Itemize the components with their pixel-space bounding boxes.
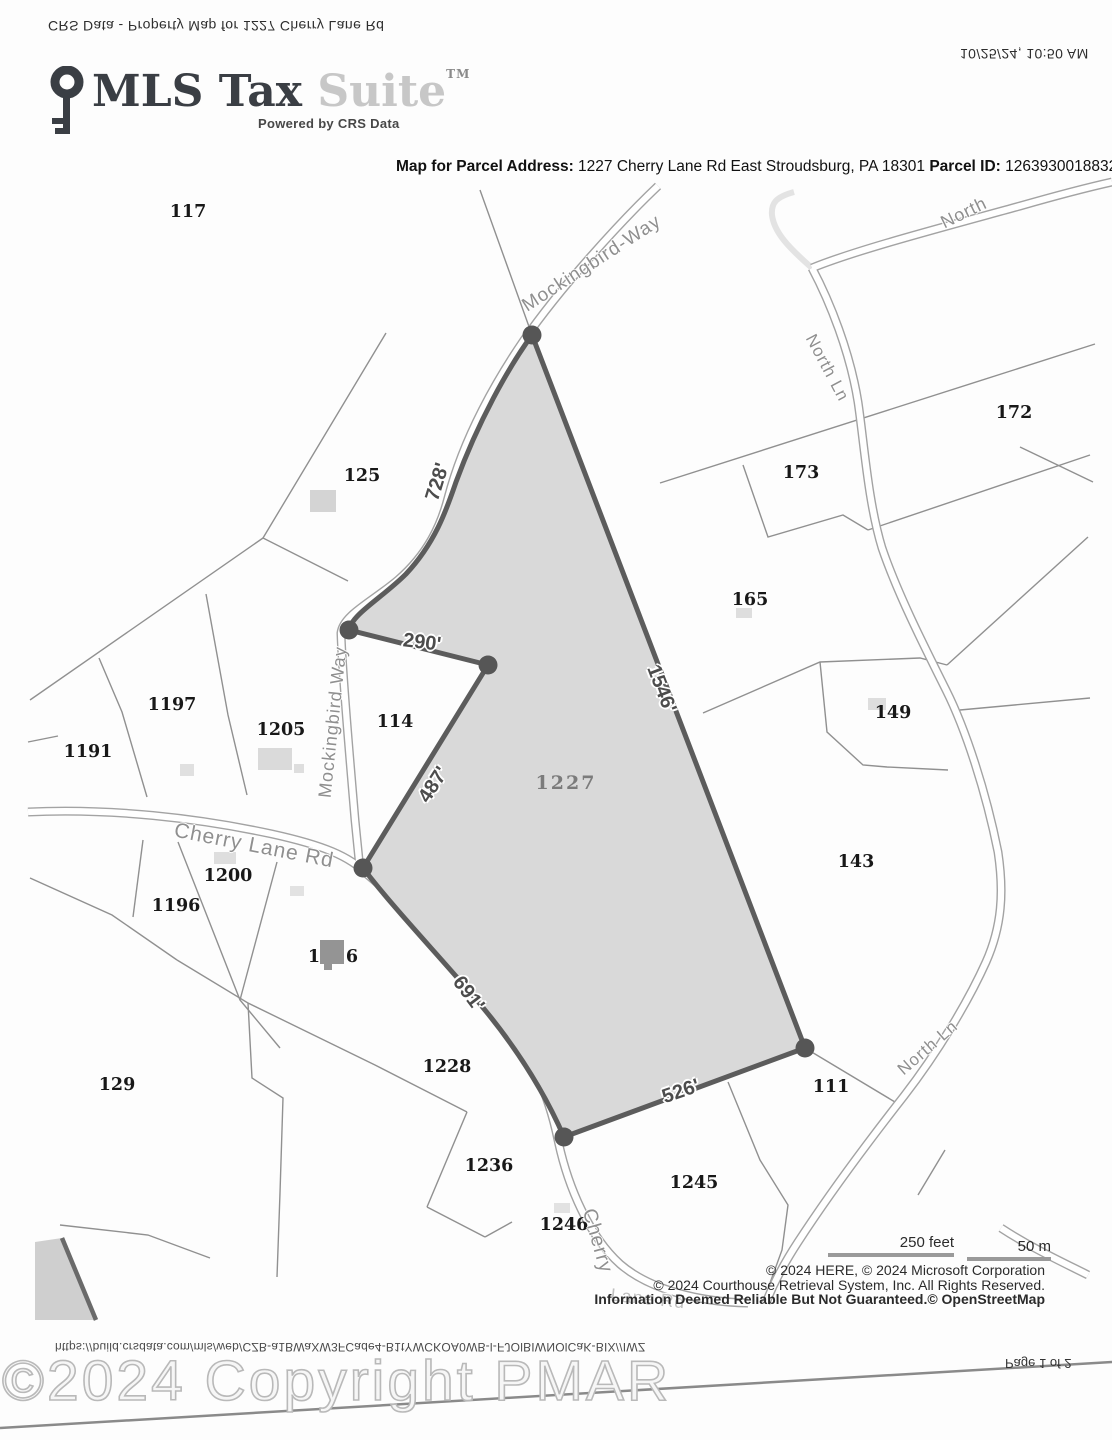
parcel-label-1x6-suffix: 6 — [346, 947, 358, 967]
map-copyright-block: © 2024 HERE, © 2024 Microsoft Corporatio… — [594, 1263, 1045, 1307]
parcel-label-149: 149 — [875, 703, 912, 723]
dimension-290: 290' — [402, 629, 443, 656]
subject-parcel-1227 — [349, 335, 805, 1137]
copyright-line-1: © 2024 HERE, © 2024 Microsoft Corporatio… — [594, 1263, 1045, 1278]
parcel-label-1196: 1196 — [152, 896, 201, 916]
parcel-label-1228: 1228 — [423, 1057, 472, 1077]
copyright-watermark: ©2024 Copyright PMAR — [2, 1348, 671, 1414]
building-icon-116 — [320, 940, 344, 964]
road-north-ln — [766, 268, 1001, 1303]
copyright-line-2: © 2024 Courthouse Retrieval System, Inc.… — [594, 1278, 1045, 1293]
parcel-label-1205: 1205 — [257, 720, 306, 740]
parcel-label-125: 125 — [344, 466, 381, 486]
parcel-label-117: 117 — [170, 202, 207, 222]
scale-meters-label: 50 m — [967, 1238, 1051, 1255]
parcel-label-1191: 1191 — [64, 742, 113, 762]
parcel-label-129: 129 — [99, 1075, 136, 1095]
faint-trail — [772, 192, 812, 268]
parcel-label-111: 111 — [813, 1077, 850, 1097]
scale-meters-bar — [967, 1257, 1051, 1261]
parcel-label-143: 143 — [838, 852, 875, 872]
parcel-label-172: 172 — [996, 403, 1033, 423]
parcel-label-165: 165 — [732, 590, 769, 610]
scale-feet-label: 250 feet — [828, 1234, 954, 1251]
scale-feet-bar — [828, 1253, 954, 1257]
parcel-label-173: 173 — [783, 463, 820, 483]
parcel-label-1197: 1197 — [148, 695, 197, 715]
copyright-line-3: Information Deemed Reliable But Not Guar… — [594, 1292, 1045, 1307]
parcel-label-1245: 1245 — [670, 1173, 719, 1193]
parcel-label-1x6-prefix: 1 — [308, 947, 320, 967]
flipped-page-number: Page 1 of 2 — [1005, 1356, 1072, 1371]
parcel-label-114: 114 — [377, 712, 414, 732]
parcel-label-1200: 1200 — [204, 866, 253, 886]
scanned-property-map-page: CRS Data - Property Map for 1227 Cherry … — [0, 0, 1112, 1440]
subject-parcel-label: 1227 — [536, 772, 597, 794]
parcel-label-1236: 1236 — [465, 1156, 514, 1176]
